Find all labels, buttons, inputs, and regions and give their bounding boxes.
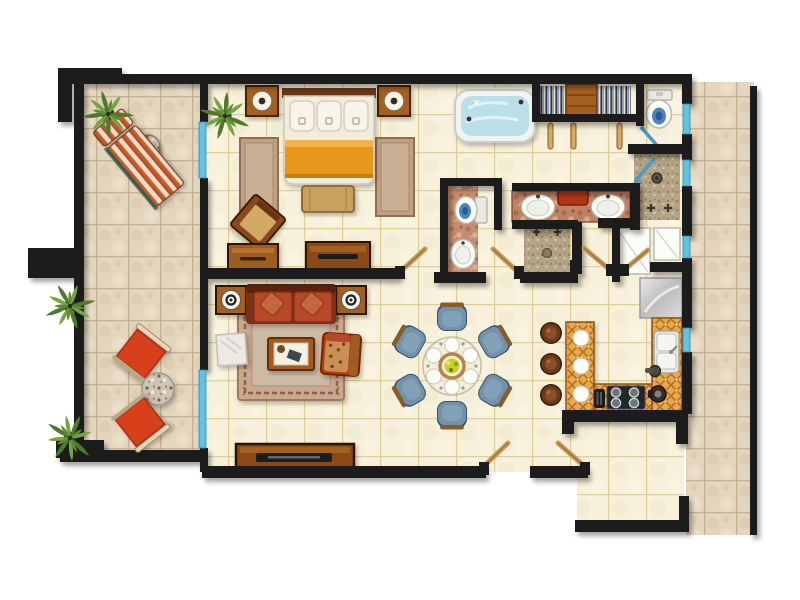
speaker-end-table-left	[216, 286, 246, 314]
jacuzzi-tub	[455, 90, 535, 142]
nightstand-left	[246, 86, 278, 116]
sofa	[246, 284, 336, 324]
bed	[282, 88, 376, 184]
sliding-glass-door-living	[199, 370, 206, 448]
nightstand-right	[378, 86, 410, 116]
floor-plan-stage	[0, 0, 800, 600]
tub-jet	[519, 100, 524, 105]
closet-shelf-unit	[566, 84, 597, 117]
pillows	[290, 101, 368, 131]
dining-chair	[437, 401, 467, 430]
bar-stool	[540, 384, 562, 406]
closet-hangers	[538, 84, 631, 117]
armchair	[321, 333, 362, 377]
white-side-table	[216, 333, 247, 366]
floor-plan-svg	[0, 0, 800, 600]
dining-chair	[437, 303, 467, 332]
toaster	[594, 389, 605, 408]
coffee-table	[268, 338, 314, 370]
dining-table	[423, 337, 481, 395]
table-decor	[277, 345, 285, 353]
bar-stool	[540, 322, 562, 344]
tub-jet	[467, 117, 472, 122]
toilet-top	[647, 90, 673, 128]
sliding-glass-door-bedroom	[199, 122, 206, 178]
bedroom-rug-right	[376, 138, 414, 216]
dresser-left	[228, 244, 278, 271]
flower-centerpiece	[445, 359, 460, 374]
dresser-handle	[318, 254, 358, 259]
speaker-end-table-right	[336, 286, 366, 314]
shower-one-floor	[634, 152, 680, 220]
dresser-right	[306, 242, 370, 272]
marble-round-table	[142, 373, 174, 405]
foot-bench	[302, 186, 354, 212]
bar-plates	[573, 330, 589, 402]
bar-stool	[540, 353, 562, 375]
walkway-right-floor	[686, 82, 754, 535]
cooktop	[607, 386, 645, 409]
